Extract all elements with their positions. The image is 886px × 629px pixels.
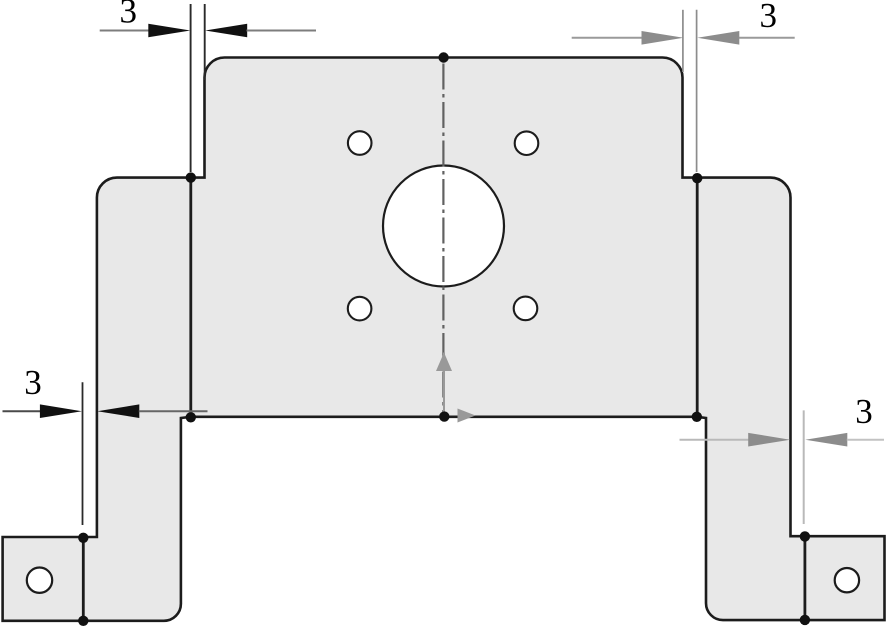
svg-text:3: 3 [120,0,138,30]
svg-text:3: 3 [24,363,42,402]
svg-text:3: 3 [760,0,778,35]
svg-text:3: 3 [855,392,873,431]
